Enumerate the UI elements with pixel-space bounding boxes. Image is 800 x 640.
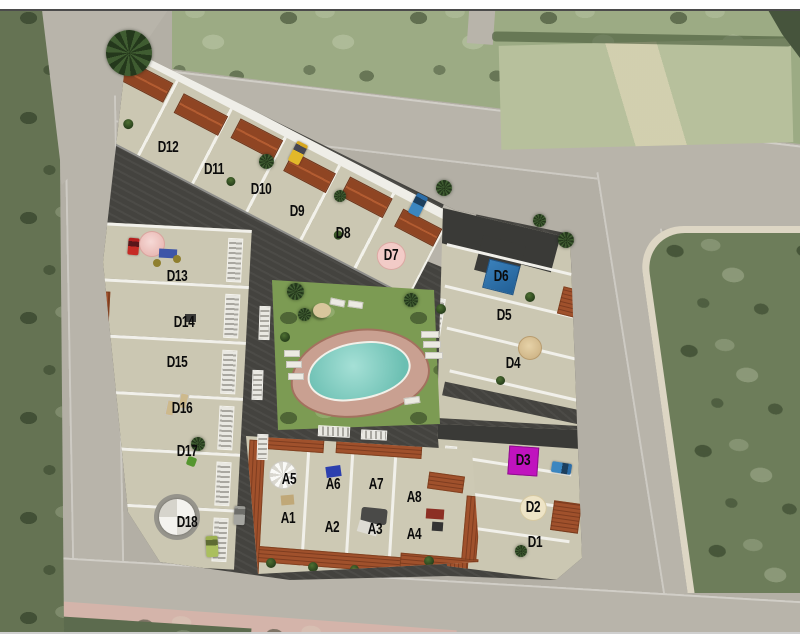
unit-label-A8[interactable]: A8 [404,489,423,507]
unit-label-D17[interactable]: D17 [173,443,201,461]
unit-label-D12[interactable]: D12 [154,139,182,157]
unit-label-D2[interactable]: D2 [523,499,542,517]
unit-label-D13[interactable]: D13 [163,268,191,286]
unit-label-D18[interactable]: D18 [173,514,201,532]
unit-label-D8[interactable]: D8 [333,225,352,243]
unit-label-D11[interactable]: D11 [201,161,228,179]
unit-label-D14[interactable]: D14 [170,314,198,332]
unit-label-A7[interactable]: A7 [366,476,385,494]
unit-labels-layer: D12D11D10D9D8D7D6D5D4D3D2D1D13D14D15D16D… [0,0,800,640]
frame-bottom [0,632,800,640]
unit-label-D15[interactable]: D15 [163,354,191,372]
unit-label-D1[interactable]: D1 [525,534,544,552]
unit-label-D6[interactable]: D6 [491,268,510,286]
unit-label-D10[interactable]: D10 [247,181,275,199]
unit-label-A3[interactable]: A3 [365,521,384,539]
unit-label-A2[interactable]: A2 [322,519,341,537]
unit-label-D5[interactable]: D5 [494,307,513,325]
unit-label-D3[interactable]: D3 [513,452,532,470]
unit-label-A6[interactable]: A6 [323,476,342,494]
unit-label-D7[interactable]: D7 [381,247,400,265]
unit-label-A1[interactable]: A1 [278,510,297,528]
satellite-background: D12D11D10D9D8D7D6D5D4D3D2D1D13D14D15D16D… [0,0,800,640]
unit-label-D4[interactable]: D4 [503,355,522,373]
unit-label-A5[interactable]: A5 [279,471,298,489]
unit-label-D16[interactable]: D16 [168,400,196,418]
unit-label-A4[interactable]: A4 [404,526,423,544]
unit-label-D9[interactable]: D9 [287,203,306,221]
frame-top [0,0,800,11]
